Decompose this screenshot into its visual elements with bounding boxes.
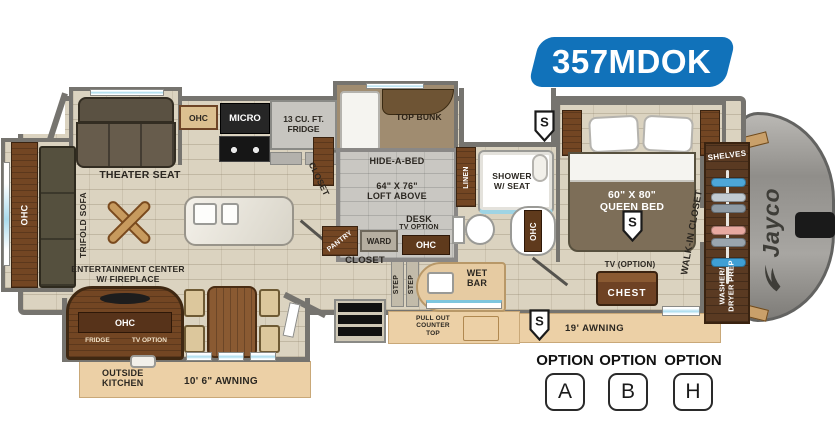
bedroom-window xyxy=(662,306,700,316)
awning-19-label: 19' AWNING xyxy=(565,323,624,334)
option-b-letter-box: B xyxy=(608,373,648,411)
chest-label: CHEST xyxy=(608,288,647,299)
awning-10-6-label: 10' 6" AWNING xyxy=(184,376,258,387)
theater-sofa-seats xyxy=(76,122,176,168)
bunk-mattress xyxy=(340,91,380,151)
entry-step-tread xyxy=(338,303,382,312)
washer-dryer-label: WASHER/ DRYER PREP xyxy=(718,260,736,311)
rear-ohc-label: OHC xyxy=(19,205,29,226)
model-badge: 357MDOK xyxy=(528,37,736,87)
option-b-letter: B xyxy=(621,380,635,404)
hanger xyxy=(711,204,746,213)
linen-label: LINEN xyxy=(463,166,470,189)
tv-screen xyxy=(100,293,150,304)
entry-step-tread xyxy=(338,315,382,324)
top-bunk-label: TOP BUNK xyxy=(384,113,454,123)
step-label-box: STEP xyxy=(400,262,424,306)
bed-sheet xyxy=(570,154,694,182)
outside-kitchen-label: OUTSIDE KITCHEN xyxy=(102,368,166,388)
kitchen-ohc-label: OHC xyxy=(189,113,208,123)
option-a-letter: A xyxy=(558,380,572,404)
pull-out-counter-label: PULL OUT COUNTER TOP xyxy=(407,315,459,337)
step-label: STEP xyxy=(408,274,415,293)
mid-ohc: OHC xyxy=(402,235,450,255)
shelves-label: SHELVES xyxy=(706,148,749,162)
entry-step-tread xyxy=(338,327,382,336)
wet-bar-sink xyxy=(427,272,454,294)
bath-ohc-label-box: OHC xyxy=(516,216,550,246)
theater-window xyxy=(90,89,164,96)
speaker-badge: S xyxy=(534,110,555,142)
mid-ohc-label: OHC xyxy=(416,240,436,250)
dinette-window xyxy=(218,352,244,361)
ward-label: WARD xyxy=(367,237,391,246)
wet-bar-label: WET BAR xyxy=(453,268,501,288)
theater-seat-label: THEATER SEAT xyxy=(84,170,196,182)
rear-ohc-label-box: OHC xyxy=(7,195,41,235)
dinette-chair xyxy=(259,289,280,317)
micro-label: MICRO xyxy=(229,113,261,124)
option-a-letter-box: A xyxy=(545,373,585,411)
washer-dryer-label-box: WASHER/ DRYER PREP xyxy=(700,252,754,320)
jayco-bird-icon xyxy=(760,263,782,293)
dinette-window xyxy=(186,352,212,361)
nightstand xyxy=(562,110,582,156)
trifold-sofa-label: TRIFOLD SOFA xyxy=(78,192,88,258)
outside-kitchen-hatch xyxy=(130,355,156,368)
fridge-label-2: FRIDGE xyxy=(287,125,319,135)
bath-bedroom-wall xyxy=(556,150,560,262)
pantry-label-box: PANTRY xyxy=(318,224,362,258)
jayco-logo: Jayco xyxy=(757,185,785,295)
theater-sofa-back xyxy=(78,97,174,123)
floorplan-canvas: 357MDOK Jayco OHC TRIFOLD SOFA THEATER S… xyxy=(0,0,837,447)
speaker-letter: S xyxy=(628,215,637,230)
model-number: 357MDOK xyxy=(552,43,711,81)
hanger xyxy=(711,238,746,247)
loft-label-2: LOFT ABOVE xyxy=(338,191,456,201)
dinette-table xyxy=(207,286,257,358)
speaker-badge: S xyxy=(529,309,550,341)
island-sink xyxy=(193,203,217,225)
island-sink xyxy=(221,203,239,225)
option-h-letter-box: H xyxy=(673,373,713,411)
entertainment-label: ENTERTAINMENT CENTER W/ FIREPLACE xyxy=(64,264,192,284)
speaker-badge: S xyxy=(622,210,643,242)
shower-label: SHOWER W/ SEAT xyxy=(480,172,544,191)
ent-tv-option-label: TV OPTION xyxy=(132,337,167,344)
wet-bar-counter xyxy=(426,300,502,309)
option-a-label: OPTION xyxy=(533,352,597,369)
pillow xyxy=(588,115,640,154)
speaker-letter: S xyxy=(540,115,549,130)
option-b-label: OPTION xyxy=(596,352,660,369)
tv-option-label: TV (OPTION) xyxy=(592,261,668,270)
desk-label: DESK xyxy=(390,214,448,224)
dinette-chair xyxy=(184,325,205,353)
pantry-label: PANTRY xyxy=(326,229,354,253)
kitchen-ohc: OHC xyxy=(179,105,218,130)
awning-10-6-strip: OUTSIDE KITCHEN 10' 6" AWNING xyxy=(79,361,311,398)
mid-closet-label: CLOSET xyxy=(332,256,398,267)
jayco-logo-text: Jayco xyxy=(758,187,785,257)
ent-fridge-label: FRIDGE xyxy=(85,337,110,344)
loft-label-1: 64" X 76" xyxy=(338,181,456,191)
speaker-letter: S xyxy=(535,314,544,329)
option-h-letter: H xyxy=(685,380,700,404)
microwave: MICRO xyxy=(220,103,270,134)
option-h-label: OPTION xyxy=(661,352,725,369)
trifold-sofa-label-box: TRIFOLD SOFA xyxy=(62,177,104,273)
dinette-chair xyxy=(184,289,205,317)
stove xyxy=(219,136,270,162)
hide-a-bed-label: HIDE-A-BED xyxy=(338,156,456,166)
option-h: OPTION H xyxy=(661,352,725,411)
desk-tv-label: TV OPTION xyxy=(390,224,448,232)
pillow xyxy=(642,115,694,154)
entertainment-ohc-label: OHC xyxy=(115,318,135,328)
pull-out-counter-outline xyxy=(463,316,499,341)
hitch-pin xyxy=(795,212,835,238)
toilet-tank xyxy=(452,216,465,244)
entertainment-ohc: OHC xyxy=(78,312,172,333)
hanger xyxy=(711,193,746,202)
linen-label-box: LINEN xyxy=(448,157,484,197)
pull-out-counter-strip: PULL OUT COUNTER TOP xyxy=(388,311,520,344)
toilet-bowl xyxy=(465,214,495,245)
chest: CHEST xyxy=(596,271,658,306)
hanger xyxy=(711,178,746,187)
entertainment-sub-labels: FRIDGE TV OPTION xyxy=(74,337,178,344)
option-b: OPTION B xyxy=(596,352,660,411)
dinette-chair xyxy=(259,325,280,353)
ward: WARD xyxy=(360,230,398,252)
dinette-window xyxy=(250,352,276,361)
hanger xyxy=(711,226,746,235)
option-a: OPTION A xyxy=(533,352,597,411)
bath-ohc-label: OHC xyxy=(529,222,538,241)
kitchen-closet-label: CLOSET xyxy=(307,161,332,198)
